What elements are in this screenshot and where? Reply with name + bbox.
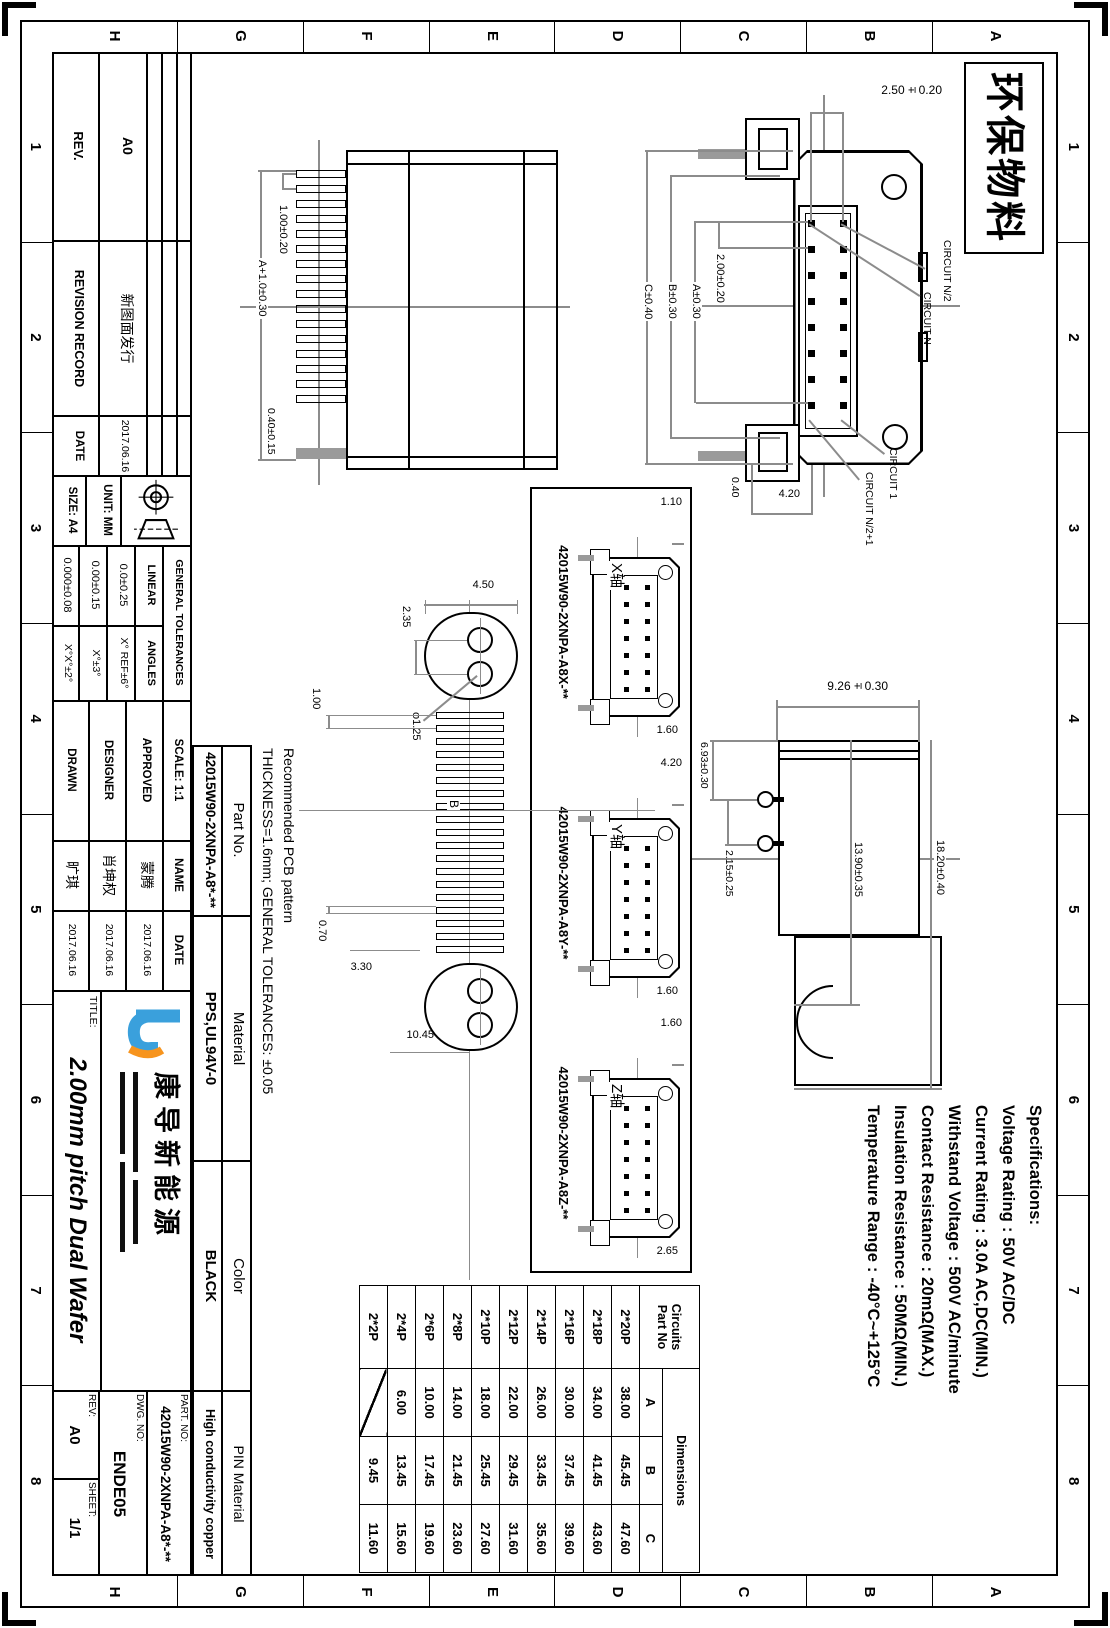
shape: Part No (656, 1286, 670, 1368)
contact-text-bar (133, 1072, 138, 1172)
mounting-hole (658, 693, 673, 708)
cell-part: 2*14P (528, 1286, 556, 1369)
line (85, 475, 87, 545)
line (100, 990, 102, 1390)
cell-part: 2*10P (472, 1286, 500, 1369)
zone-letter: C (680, 1576, 806, 1608)
cell-b: 17.45 (416, 1437, 444, 1505)
page: { "border": { "numbers": ["1","2","3","4… (0, 0, 1110, 1628)
prop-value: PPS,UL94V-0 (202, 917, 219, 1160)
pin (436, 829, 504, 836)
axis-label: Z轴 (608, 1082, 625, 1110)
outline-box (610, 575, 658, 699)
shape: A4 (66, 519, 78, 534)
dim-line (672, 1064, 684, 1066)
dim-label: 0.40±0.15 (264, 408, 276, 455)
cell-part: 2*8P (444, 1286, 472, 1369)
pin-contact (624, 636, 629, 641)
pin (436, 894, 504, 901)
pin (436, 946, 504, 953)
shape: 2*20P 38.00 45.45 47.60 2*18P 34.00 41.4… (360, 1286, 640, 1573)
company-logo (114, 1000, 186, 1062)
line (79, 545, 81, 700)
dim-label: A±0.30 (690, 282, 702, 321)
zone-letter: D (555, 1576, 681, 1608)
spec-line: Voltage Rating : 50V AC/DC (994, 1105, 1021, 1394)
dim-label: 1.00±0.20 (277, 205, 289, 254)
dim-line (672, 804, 684, 806)
pcb-note-1: Recommended PCB pattern (281, 748, 296, 923)
shape: SCALE: (172, 739, 184, 782)
dim-line (416, 640, 418, 675)
line (162, 700, 164, 990)
line (134, 545, 136, 700)
dim-line (719, 221, 721, 248)
sheet-label: SHEET: (86, 1482, 97, 1517)
pin-contact (645, 1140, 650, 1145)
mounting-hole (658, 1214, 673, 1229)
date-header: DATE (171, 912, 184, 988)
pin-contact (645, 1174, 650, 1179)
pin-contact (624, 914, 629, 919)
dim-label: 4.20 (779, 489, 800, 500)
pin (296, 320, 346, 328)
oval-pad (424, 963, 518, 1051)
pin-contact (624, 602, 629, 607)
specifications: Specifications: Voltage Rating : 50V AC/… (859, 1105, 1048, 1394)
dim-label: C±0.40 (642, 282, 654, 321)
zone-letter: C (680, 20, 806, 52)
pin-contact (645, 636, 650, 641)
linear-tol: 0.00±0.15 (89, 546, 101, 624)
approved-name: 蒙腾 (139, 842, 154, 908)
pin-contact (624, 1174, 629, 1179)
dim-line (672, 543, 684, 545)
dim-line (326, 906, 436, 907)
dim-label: 4.50 (473, 580, 494, 591)
pin-contact (624, 619, 629, 624)
spec-line: Temperature Range : -40°C~+125°C (859, 1105, 886, 1394)
dim-line (713, 740, 715, 800)
axis-label: Y轴 (608, 822, 625, 851)
designer-name: 肖坤权 (101, 842, 116, 908)
prop-value: BLACK (202, 1162, 219, 1390)
dim-line (710, 740, 778, 742)
zone-number: 4 (1058, 624, 1090, 815)
contact-text-bar (133, 1180, 138, 1244)
mounting-hole (882, 424, 908, 450)
cell-part: 2*12P (500, 1286, 528, 1369)
dim-line (670, 437, 780, 439)
col-header-b: B (640, 1437, 663, 1505)
housing-outline (346, 150, 558, 470)
cell-a: 6.00 (388, 1369, 416, 1437)
line (346, 163, 558, 165)
dim-label: 6.93±0.30 (697, 742, 709, 789)
dim-line (283, 173, 285, 190)
dim-label: 2.00±0.20 (714, 252, 726, 305)
line (120, 475, 122, 545)
cell-b: 41.45 (584, 1437, 612, 1505)
size-cell: SIZE: A4 (65, 477, 78, 543)
dim-line (645, 463, 793, 465)
dim-line (728, 799, 730, 845)
cell-a: 22.00 (500, 1369, 528, 1437)
pin-tail (698, 451, 752, 461)
mounting-hole (658, 565, 673, 580)
pin (436, 712, 504, 719)
dim-line (931, 740, 933, 1088)
pin-contact (645, 1157, 650, 1162)
zone-letter: F (303, 1576, 429, 1608)
pin (436, 816, 504, 823)
pin-contact (645, 1106, 650, 1111)
drawn-name: 旷琪 (64, 842, 79, 908)
zone-number: 3 (20, 433, 52, 624)
specs-title: Specifications: (1021, 1105, 1048, 1394)
pin-tail (578, 966, 594, 972)
pin-tail (578, 816, 594, 822)
dim-line (752, 465, 754, 515)
pin-tail (578, 705, 594, 711)
pin (436, 764, 504, 771)
oval-pad (424, 612, 518, 700)
zone-number: 8 (20, 1386, 52, 1576)
table-row: 2*10P 18.00 25.45 27.60 (472, 1286, 500, 1573)
dim-line (718, 247, 808, 249)
line (89, 700, 91, 990)
pin (436, 855, 504, 862)
dim-line (696, 221, 808, 223)
pin-contact (645, 846, 650, 851)
pin (436, 868, 504, 875)
linear-tol: 0.0±0.25 (117, 546, 129, 624)
revision-record-value: 新图面发行 (119, 242, 134, 415)
pin-contact (624, 1191, 629, 1196)
dim-line (811, 112, 844, 114)
drawn-date: 2017.06.16 (65, 912, 77, 988)
table-row: 2*20P 38.00 45.45 47.60 (612, 1286, 640, 1573)
dim-line (794, 1088, 942, 1090)
shape: 1:1 (172, 785, 184, 802)
dim-line (480, 969, 481, 1045)
col-header-c: C (640, 1505, 663, 1573)
pin-contact (624, 880, 629, 885)
cell-part: 2*6P (416, 1286, 444, 1369)
dim-label: 9.26±0.30 (827, 680, 888, 692)
dim-line (469, 600, 470, 1280)
dim-line (517, 600, 518, 614)
mounting-hole (658, 826, 673, 841)
pin-contact (645, 619, 650, 624)
pin (296, 290, 346, 298)
dim-label: 2.15±0.25 (722, 850, 734, 897)
cell-c: 39.60 (556, 1505, 584, 1573)
zone-numbers-bottom: 12345678 (20, 52, 52, 1576)
solder-hook (757, 791, 774, 808)
designer-date: 2017.06.16 (102, 912, 114, 988)
line (146, 52, 148, 475)
angle-tol: X° REF±6° (117, 627, 129, 699)
table-row: 2*18P 34.00 41.45 43.60 (584, 1286, 612, 1573)
dim-line (425, 600, 426, 614)
pin (436, 907, 504, 914)
cell-a: 38.00 (612, 1369, 640, 1437)
dim-line (282, 188, 296, 190)
table-row: 2*4P 6.00 13.45 15.60 (388, 1286, 416, 1573)
line (98, 52, 100, 475)
line (98, 1390, 100, 1576)
zone-number: 1 (20, 52, 52, 243)
dim-line (414, 640, 467, 641)
col-header-a: A (640, 1369, 663, 1437)
specs-lines: Voltage Rating : 50V AC/DCCurrent Rating… (859, 1105, 1021, 1394)
shape: MM (101, 517, 113, 536)
prop-value: 42015W90-2XNPA-A8*-** (202, 745, 217, 915)
body-outline (778, 740, 920, 936)
trim-mark (1074, 2, 1108, 8)
pin-contact (840, 324, 847, 331)
tolerances-title: GENERAL TOLERANCES (172, 546, 184, 699)
dim-label: 18.20±0.40 (934, 838, 946, 897)
pin-contact (624, 1157, 629, 1162)
cell-part: 2*4P (388, 1286, 416, 1369)
pin-contact (645, 1208, 650, 1213)
pin-contact (645, 914, 650, 919)
mounting-hole (881, 174, 907, 200)
circuit-label: CIRCUIT 1 (886, 448, 898, 499)
pin (296, 230, 346, 238)
spec-line: Contact Resistance : 20mΩ(MAX.) (913, 1105, 940, 1394)
pcb-note-2: THICKNESS=1.6mm; GENERAL TOLERANCES: ±0.… (260, 748, 275, 1094)
end-pin (296, 448, 346, 459)
unit-cell: UNIT: MM (100, 477, 113, 543)
zone-number: 3 (1058, 433, 1090, 624)
dim-line (329, 906, 331, 914)
pin-contact (645, 602, 650, 607)
dim-line (696, 402, 808, 404)
pin-contact (645, 653, 650, 658)
cell-b: 21.45 (444, 1437, 472, 1505)
dim-line (414, 674, 467, 675)
pin-contact (808, 402, 815, 409)
pin (296, 200, 346, 208)
mounting-hole (658, 954, 673, 969)
prop-header: Part No. (230, 745, 247, 915)
trim-mark (2, 2, 36, 8)
pin (296, 380, 346, 388)
cell-c: 31.60 (500, 1505, 528, 1573)
dim-line (752, 513, 813, 515)
pin (296, 275, 346, 283)
dim-label: 0.40 (728, 477, 740, 497)
prop-value: High conductivity copper (202, 1392, 216, 1576)
line (346, 456, 558, 458)
circuit-label: CIRCUIT N/2+1 (862, 472, 874, 546)
contact-text-bar (120, 1072, 125, 1154)
dim-label: 1.60 (661, 1018, 682, 1029)
zone-letters-left: ABCDEFGH (52, 20, 1058, 52)
dim-line (725, 844, 757, 846)
dim-line (843, 112, 845, 222)
dim-line (282, 173, 296, 175)
dim-line (258, 170, 296, 172)
pin-contact (808, 376, 815, 383)
mounting-ear (590, 960, 610, 986)
zone-letter: A (932, 1576, 1058, 1608)
cell-b: 9.45 (360, 1437, 388, 1505)
designer-role: DESIGNER (101, 702, 114, 838)
cell-a: 18.00 (472, 1369, 500, 1437)
cell-b: 29.45 (500, 1437, 528, 1505)
circuits-header: Circuits Part No (640, 1286, 700, 1369)
pin (296, 335, 346, 343)
shape: Circuits (670, 1286, 684, 1368)
trim-mark (1074, 1620, 1108, 1626)
pin-contact (840, 350, 847, 357)
dim-line (710, 799, 757, 801)
pin-contact (808, 272, 815, 279)
pin-tail (578, 1226, 594, 1232)
pin (296, 350, 346, 358)
outline-box (610, 1096, 658, 1220)
dim-label: 2.50±0.20 (881, 84, 942, 96)
zone-letters-right: ABCDEFGH (52, 1576, 1058, 1608)
line (409, 150, 411, 470)
pin-contact (645, 1191, 650, 1196)
zone-letter: A (932, 20, 1058, 52)
pin (296, 245, 346, 253)
shape: Circuits Part No Dimensions A B C (640, 1286, 700, 1573)
spec-line: Current Rating : 3.0A AC,DC(MIN.) (967, 1105, 994, 1394)
pin (436, 933, 504, 940)
dim-line (811, 112, 813, 222)
pin-contact (808, 246, 815, 253)
shape: Circuits Part No Dimensions (663, 1286, 700, 1573)
line (778, 750, 920, 752)
zone-number: 1 (1058, 52, 1090, 243)
part-no-label: PART. NO: (178, 1394, 189, 1442)
zone-number: 5 (20, 815, 52, 1006)
ear-slot (758, 128, 788, 170)
dwg-no-label: DWG. NO: (134, 1394, 145, 1442)
dim-line (778, 706, 920, 708)
zone-letter: H (52, 1576, 177, 1608)
cell-c: 19.60 (416, 1505, 444, 1573)
drawn-role: DRAWN (64, 702, 77, 838)
solder-hook (757, 835, 774, 852)
dim-line (326, 715, 436, 716)
dim-line (390, 1052, 470, 1053)
revision-record-header: REVISION RECORD (71, 242, 85, 415)
cell-part: 2*2P (360, 1286, 388, 1369)
pin-contact (645, 585, 650, 590)
drawing-title: 2.00mm pitch Dual Wafer (64, 1030, 90, 1370)
pin (296, 170, 346, 178)
rev-label: REV: (86, 1394, 97, 1417)
pin-contact (645, 687, 650, 692)
dim-label: 1.60 (657, 725, 678, 736)
pin-contact (624, 897, 629, 902)
cell-part: 2*16P (556, 1286, 584, 1369)
prop-header: Material (230, 917, 247, 1160)
zone-number: 7 (1058, 1196, 1090, 1387)
cell-a: 26.00 (528, 1369, 556, 1437)
pin-contact (624, 931, 629, 936)
pin-contact (624, 948, 629, 953)
eco-material-label: 环保物料 (982, 72, 1026, 244)
pin-contact (624, 653, 629, 658)
revision-rev-header: REV. (71, 52, 85, 240)
cell-c: 27.60 (472, 1505, 500, 1573)
dim-label: 2.35 (400, 606, 412, 627)
zone-letter: B (806, 20, 932, 52)
line (778, 758, 920, 760)
pin-contact (624, 1208, 629, 1213)
zone-number: 2 (20, 243, 52, 434)
zone-letter: G (177, 20, 303, 52)
approved-role: APPROVED (139, 702, 152, 838)
pin-contact (624, 687, 629, 692)
axis-part-no: 42015W90-2XNPA-A8Z-** (556, 1023, 570, 1263)
dim-line (812, 465, 814, 515)
zone-numbers-top: 12345678 (1058, 52, 1090, 1576)
cell-c: 11.60 (360, 1505, 388, 1573)
dwg-no-value: ENDE05 (109, 1392, 128, 1576)
pin-contact (645, 948, 650, 953)
line (190, 52, 192, 1576)
pin-contact (645, 897, 650, 902)
linear-header: LINEAR (145, 546, 157, 624)
zone-number: 6 (1058, 1005, 1090, 1196)
cell-c: 35.60 (528, 1505, 556, 1573)
table-row: 2*2P 9.45 11.60 (360, 1286, 388, 1573)
cell-c: 15.60 (388, 1505, 416, 1573)
zone-number: 5 (1058, 815, 1090, 1006)
pin (436, 881, 504, 888)
dimensions-header: Dimensions (663, 1369, 700, 1573)
axis-part-no: 42015W90-2XNPA-A8X-** (556, 502, 570, 742)
prop-header: Color (230, 1162, 247, 1390)
pin-contact (624, 1123, 629, 1128)
pin-contact (645, 863, 650, 868)
dim-line (350, 950, 420, 951)
pin-contact (808, 298, 815, 305)
revision-date-header: DATE (72, 417, 85, 475)
table-row: 2*14P 26.00 33.45 35.60 (528, 1286, 556, 1573)
cell-c: 47.60 (612, 1505, 640, 1573)
spec-line: Insulation Resistance : 50MΩ(MIN.) (886, 1105, 913, 1394)
circuits-table: Circuits Part No Dimensions A B C 2*20P … (359, 1285, 700, 1573)
zone-letter: B (806, 1576, 932, 1608)
pin-contact (645, 1123, 650, 1128)
linear-tol: 0.000±0.08 (61, 546, 73, 624)
cell-b: 25.45 (472, 1437, 500, 1505)
pin (436, 920, 504, 927)
zone-letter: F (303, 20, 429, 52)
trim-mark (2, 1620, 36, 1626)
angle-tol: X°±3° (89, 627, 101, 699)
cell-part: 2*18P (584, 1286, 612, 1369)
line (524, 150, 526, 470)
pin (436, 738, 504, 745)
table-row: 2*8P 14.00 21.45 23.60 (444, 1286, 472, 1573)
pin (436, 842, 504, 849)
contact-text-bar (120, 1162, 125, 1252)
revision-date-value: 2017.06.16 (118, 417, 130, 475)
company-name: 康导新能源 (150, 1072, 180, 1242)
rev-value: A0 (66, 1392, 83, 1478)
